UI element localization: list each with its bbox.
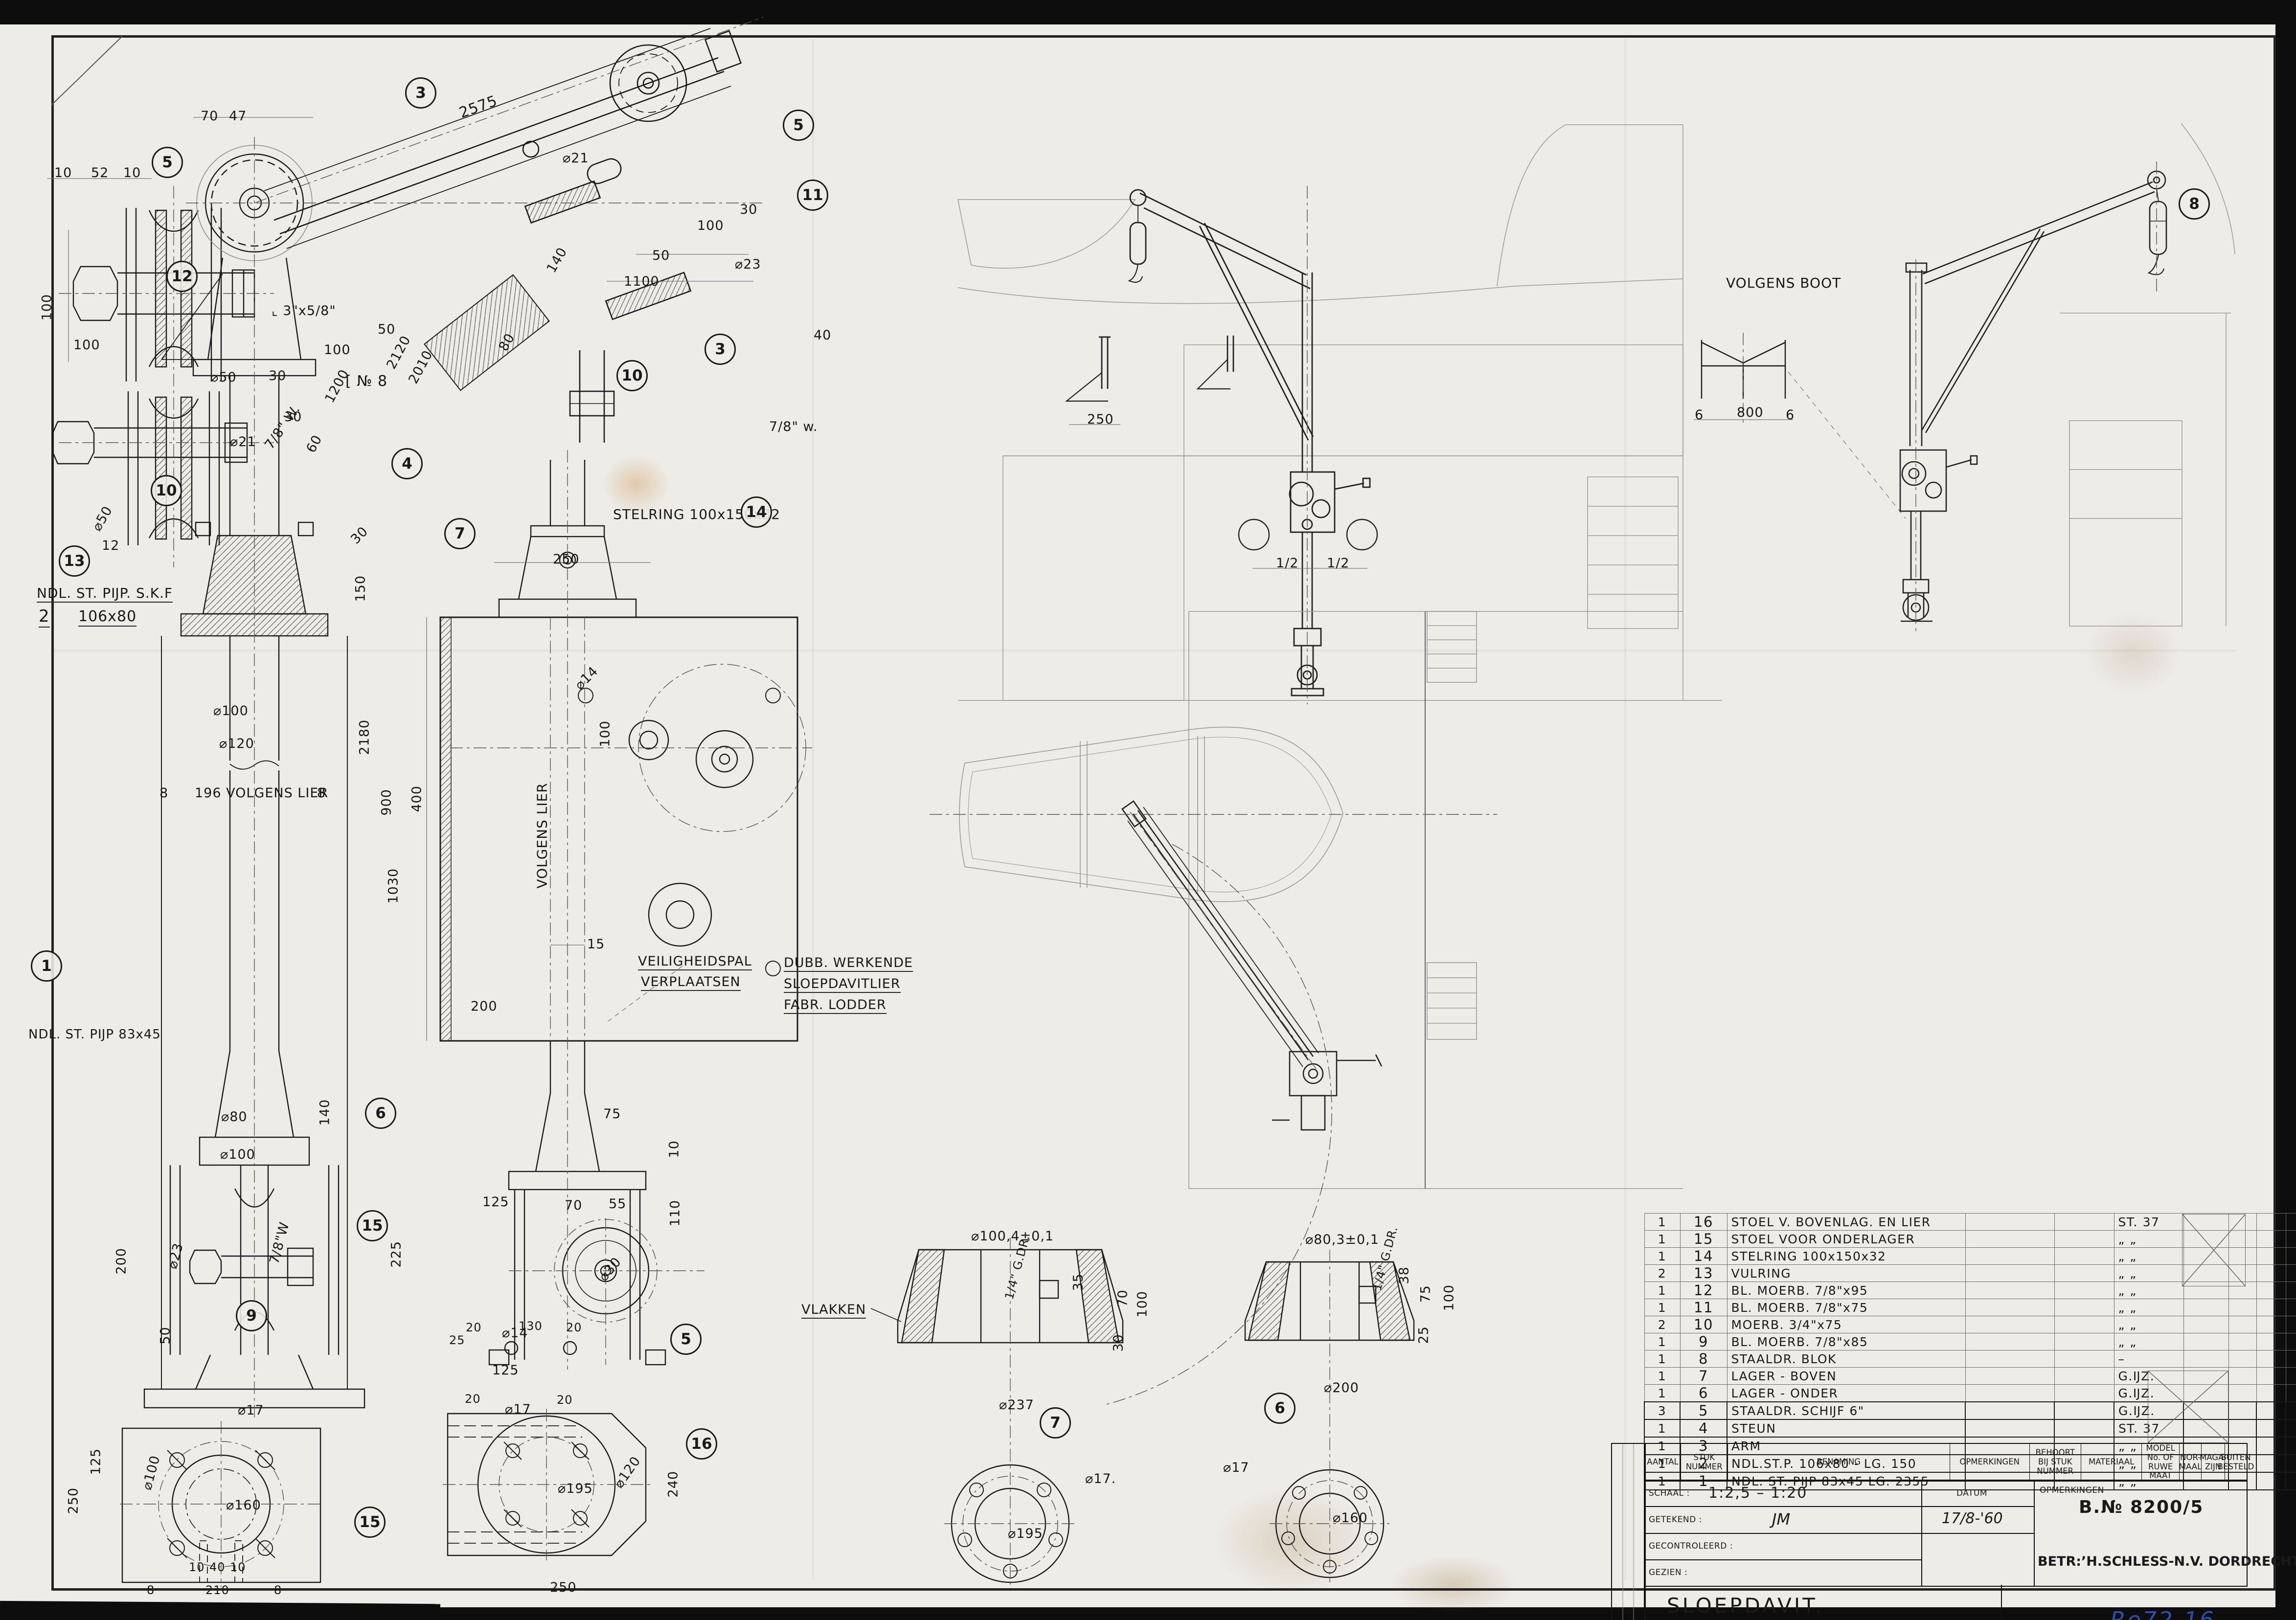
parts-num: 6 <box>1680 1385 1727 1402</box>
parts-maga <box>2256 1368 2286 1385</box>
parts-num: 12 <box>1680 1282 1727 1299</box>
parts-beh <box>2054 1368 2114 1385</box>
parts-name: VULRING <box>1727 1265 1965 1282</box>
parts-model <box>2183 1333 2228 1350</box>
parts-row: 19BL. MOERB. 7/8"x85„ „ <box>1644 1333 2296 1350</box>
parts-opm <box>1965 1350 2054 1368</box>
parts-qty: 1 <box>1644 1385 1680 1402</box>
parts-beh <box>2054 1231 2114 1248</box>
parts-name: LAGER - ONDER <box>1727 1385 1965 1402</box>
parts-buiten <box>2286 1265 2296 1282</box>
parts-num: 9 <box>1680 1333 1727 1350</box>
parts-row: 18STAALDR. BLOK– <box>1644 1350 2296 1368</box>
parts-mat: „ „ <box>2114 1282 2183 1299</box>
title-block: 116STOEL V. BOVENLAG. EN LIERST. 37115ST… <box>1611 1213 2246 1585</box>
parts-qty: 1 <box>1644 1282 1680 1299</box>
parts-name: BL. MOERB. 7/8"x75 <box>1727 1299 1965 1316</box>
parts-opm <box>1965 1385 2054 1402</box>
parts-qty: 1 <box>1644 1350 1680 1368</box>
header-benaming: BENAMING <box>1728 1444 1950 1481</box>
parts-nor <box>2228 1333 2256 1350</box>
parts-beh <box>2054 1385 2114 1402</box>
datum-head: DATUM <box>1922 1481 2035 1507</box>
parts-qty: 1 <box>1644 1419 1680 1437</box>
parts-mat: „ „ <box>2114 1316 2183 1333</box>
parts-beh <box>2054 1419 2114 1437</box>
parts-opm <box>1965 1265 2054 1282</box>
parts-name: STOEL V. BOVENLAG. EN LIER <box>1727 1214 1965 1231</box>
schaal-value: 1:2,5 – 1:20 <box>1708 1485 1807 1502</box>
parts-mat: ST. 37 <box>2114 1214 2183 1231</box>
header-aantal: AANTAL <box>1645 1444 1681 1481</box>
parts-maga <box>2256 1231 2286 1248</box>
schaal-row: SCHAAL : 1:2,5 – 1:20 <box>1645 1481 1921 1507</box>
betreft-note: BETR:’H.SCHLESS-N.V. DORDRECHT <box>2038 1554 2296 1569</box>
header-model: MODEL No. OF RUWE MAAT <box>2142 1444 2180 1481</box>
parts-buiten <box>2286 1299 2296 1316</box>
parts-model <box>2183 1299 2228 1316</box>
parts-nor <box>2228 1419 2256 1437</box>
balloon-callout: 5 <box>783 110 814 141</box>
parts-num: 7 <box>1680 1368 1727 1385</box>
parts-maga <box>2256 1402 2286 1419</box>
parts-qty: 1 <box>1644 1368 1680 1385</box>
parts-mat: – <box>2114 1350 2183 1368</box>
datum-cell: 17/8-'60 <box>1922 1506 2035 1534</box>
parts-opm <box>1965 1368 2054 1385</box>
balloon-callout: 4 <box>391 448 423 479</box>
parts-row: 111BL. MOERB. 7/8"x75„ „ <box>1644 1299 2296 1316</box>
header-stuknummer: STUK NUMMER <box>1681 1444 1728 1481</box>
info-area: SCHAAL : 1:2,5 – 1:20 GETEKEND : JM GECO… <box>1644 1480 2248 1587</box>
parts-mat: „ „ <box>2114 1333 2183 1350</box>
parts-name: MOERB. 3/4"x75 <box>1727 1316 1965 1333</box>
parts-nor <box>2228 1385 2256 1402</box>
parts-opm <box>1965 1333 2054 1350</box>
balloon-callout: 8 <box>2179 188 2210 220</box>
parts-maga <box>2256 1214 2286 1231</box>
parts-buiten <box>2286 1385 2296 1402</box>
parts-beh <box>2054 1316 2114 1333</box>
parts-buiten <box>2286 1282 2296 1299</box>
parts-buiten <box>2286 1350 2296 1368</box>
parts-name: STAALDR. SCHĲF 6" <box>1727 1402 1965 1419</box>
parts-beh <box>2054 1282 2114 1299</box>
header-materiaal: MATERIAAL <box>2081 1444 2142 1481</box>
getekend-label: GETEKEND : <box>1649 1515 1702 1525</box>
balloon-callout: 9 <box>236 1300 267 1331</box>
getekend-row: GETEKEND : JM <box>1645 1506 1921 1534</box>
parts-opm <box>1965 1299 2054 1316</box>
balloon-callout: 12 <box>166 261 198 292</box>
parts-buiten <box>2286 1231 2296 1248</box>
parts-model <box>2183 1316 2228 1333</box>
parts-qty: 2 <box>1644 1265 1680 1282</box>
parts-buiten <box>2286 1333 2296 1350</box>
parts-name: LAGER - BOVEN <box>1727 1368 1965 1385</box>
balloon-callout: 16 <box>686 1428 717 1460</box>
parts-num: 5 <box>1680 1402 1727 1419</box>
parts-name: STAALDR. BLOK <box>1727 1350 1965 1368</box>
balloon-callout: 10 <box>616 360 648 391</box>
parts-list-header: AANTAL STUK NUMMER BENAMING OPMERKINGEN … <box>1644 1443 2248 1482</box>
parts-maga <box>2256 1316 2286 1333</box>
parts-name: BL. MOERB. 7/8"x95 <box>1727 1282 1965 1299</box>
parts-beh <box>2054 1402 2114 1419</box>
parts-qty: 1 <box>1644 1214 1680 1231</box>
b-number: B.№ 8200/5 <box>2079 1497 2204 1517</box>
balloon-callout: 11 <box>797 180 828 211</box>
balloon-callout: 6 <box>1264 1393 1296 1424</box>
parts-maga <box>2256 1455 2286 1472</box>
balloon-callout: 3 <box>405 77 436 109</box>
parts-maga <box>2256 1350 2286 1368</box>
gecontroleerd-label: GECONTROLEERD : <box>1649 1541 1733 1551</box>
parts-opm <box>1965 1282 2054 1299</box>
parts-beh <box>2054 1214 2114 1231</box>
parts-maga <box>2256 1472 2286 1490</box>
parts-num: 8 <box>1680 1350 1727 1368</box>
parts-num: 13 <box>1680 1265 1727 1282</box>
parts-beh <box>2054 1265 2114 1282</box>
parts-mat: „ „ <box>2114 1299 2183 1316</box>
parts-maga <box>2256 1419 2286 1437</box>
parts-mat: „ „ <box>2114 1265 2183 1282</box>
parts-opm <box>1965 1402 2054 1419</box>
getekend-value: JM <box>1772 1510 1790 1529</box>
parts-qty: 3 <box>1644 1402 1680 1419</box>
crossed-cell <box>2182 1214 2246 1286</box>
parts-nor <box>2228 1316 2256 1333</box>
parts-opm <box>1965 1419 2054 1437</box>
gezien-label: GEZIEN : <box>1649 1568 1687 1577</box>
parts-num: 14 <box>1680 1248 1727 1265</box>
parts-mat: „ „ <box>2114 1248 2183 1265</box>
parts-nor <box>2228 1299 2256 1316</box>
parts-maga <box>2256 1282 2286 1299</box>
drawing-sheet: 1052101007/8" W.100⌀5070472575⌀213010050… <box>0 0 2296 1620</box>
parts-buiten <box>2286 1455 2296 1472</box>
handwritten-note: Ro72-16 <box>2110 1607 2215 1620</box>
parts-buiten <box>2286 1402 2296 1419</box>
parts-beh <box>2054 1333 2114 1350</box>
schaal-label: SCHAAL : <box>1649 1488 1690 1498</box>
header-behoort: BEHOORT BIJ STUK NUMMER <box>2030 1444 2081 1481</box>
gezien-row: GEZIEN : <box>1645 1559 1921 1586</box>
parts-qty: 1 <box>1644 1333 1680 1350</box>
parts-buiten <box>2286 1419 2296 1437</box>
parts-maga <box>2256 1248 2286 1265</box>
balloon-callout: 14 <box>741 496 772 528</box>
parts-beh <box>2054 1299 2114 1316</box>
parts-buiten <box>2286 1368 2296 1385</box>
parts-name: STOEL VOOR ONDERLAGER <box>1727 1231 1965 1248</box>
parts-qty: 1 <box>1644 1231 1680 1248</box>
parts-num: 10 <box>1680 1316 1727 1333</box>
parts-opm <box>1965 1316 2054 1333</box>
gecontroleerd-row: GECONTROLEERD : <box>1645 1533 1921 1560</box>
parts-name: STELRING 100x150x32 <box>1727 1248 1965 1265</box>
parts-maga <box>2256 1299 2286 1316</box>
parts-row: 210MOERB. 3/4"x75„ „ <box>1644 1316 2296 1333</box>
parts-beh <box>2054 1350 2114 1368</box>
balloon-callout: 5 <box>152 147 183 178</box>
parts-num: 4 <box>1680 1419 1727 1437</box>
parts-opm <box>1965 1248 2054 1265</box>
uitvoering-column: C B A UITVOERING <box>1611 1443 1646 1620</box>
parts-name: BL. MOERB. 7/8"x85 <box>1727 1333 1965 1350</box>
opmerkingen-label: OPMERKINGEN <box>2040 1485 2104 1495</box>
parts-num: 16 <box>1680 1214 1727 1231</box>
header-normaal: NOR- MAAL <box>2180 1444 2202 1481</box>
parts-buiten <box>2286 1316 2296 1333</box>
balloon-callout: 1 <box>31 950 62 982</box>
header-opmerkingen: OPMERKINGEN <box>1950 1444 2030 1481</box>
header-buiten: BUITEN BESTELD <box>2225 1444 2247 1481</box>
balloon-callout: 10 <box>151 475 182 506</box>
balloon-callout: 6 <box>365 1098 396 1129</box>
parts-opm <box>1965 1231 2054 1248</box>
parts-maga <box>2256 1437 2286 1455</box>
balloon-callout: 5 <box>670 1324 702 1355</box>
crossed-cell <box>2148 1371 2228 1443</box>
parts-qty: 2 <box>1644 1316 1680 1333</box>
parts-maga <box>2256 1333 2286 1350</box>
parts-beh <box>2054 1248 2114 1265</box>
balloon-callout: 7 <box>444 518 476 549</box>
parts-buiten <box>2286 1248 2296 1265</box>
parts-maga <box>2256 1385 2286 1402</box>
balloon-callout: 13 <box>59 545 90 577</box>
parts-opm <box>1965 1214 2054 1231</box>
balloon-callout: 15 <box>354 1507 386 1538</box>
parts-qty: 1 <box>1644 1299 1680 1316</box>
opmerkingen-zone: OPMERKINGEN B.№ 8200/5 BETR:’H.SCHLESS-N… <box>2034 1481 2248 1586</box>
datum-label: DATUM <box>1956 1488 1987 1498</box>
parts-maga <box>2256 1265 2286 1282</box>
datum-value: 17/8-'60 <box>1942 1510 2003 1527</box>
parts-nor <box>2228 1402 2256 1419</box>
datum-col: DATUM 17/8-'60 <box>1921 1481 2035 1586</box>
balloon-callout: 3 <box>705 334 736 365</box>
drawing-title: SLOEPDAVIT. <box>1667 1594 1824 1618</box>
parts-buiten <box>2286 1472 2296 1490</box>
parts-nor <box>2228 1368 2256 1385</box>
parts-num: 15 <box>1680 1231 1727 1248</box>
balloon-callout: 15 <box>357 1210 388 1241</box>
parts-num: 11 <box>1680 1299 1727 1316</box>
balloon-callout: 7 <box>1040 1407 1071 1439</box>
parts-model <box>2183 1350 2228 1368</box>
parts-buiten <box>2286 1214 2296 1231</box>
drawing-title-area: SLOEPDAVIT. M.s..“LAMBERT” <box>1644 1585 2002 1620</box>
parts-name: STEUN <box>1727 1419 1965 1437</box>
parts-mat: „ „ <box>2114 1231 2183 1248</box>
parts-qty: 1 <box>1644 1248 1680 1265</box>
parts-nor <box>2228 1350 2256 1368</box>
parts-buiten <box>2286 1437 2296 1455</box>
